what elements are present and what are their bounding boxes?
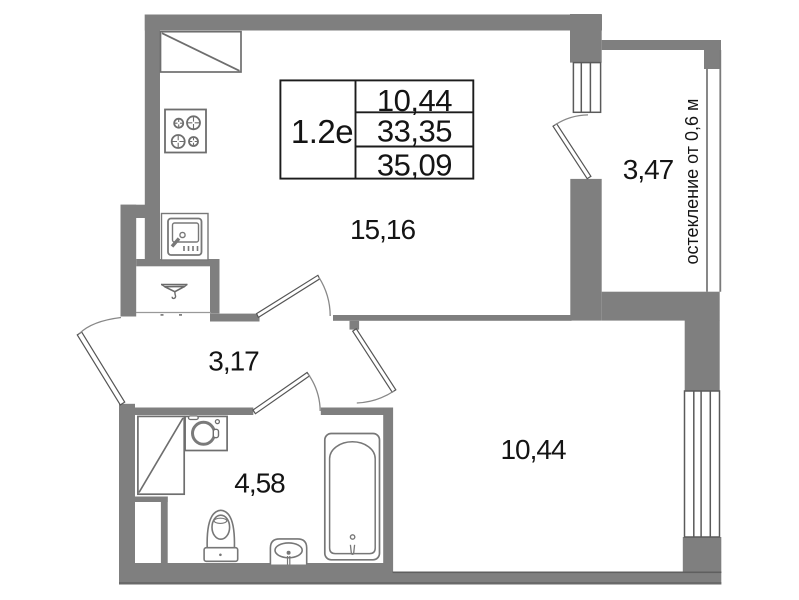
svg-text:остекление от 0,6 м: остекление от 0,6 м bbox=[682, 99, 702, 265]
svg-text:35,09: 35,09 bbox=[377, 147, 452, 182]
svg-text:33,35: 33,35 bbox=[377, 114, 452, 149]
svg-text:10,44: 10,44 bbox=[377, 83, 452, 118]
svg-text:4,58: 4,58 bbox=[234, 467, 285, 498]
svg-text:1.2е: 1.2е bbox=[291, 113, 353, 150]
svg-text:3,17: 3,17 bbox=[208, 346, 259, 377]
svg-text:15,16: 15,16 bbox=[350, 214, 415, 245]
svg-text:10,44: 10,44 bbox=[500, 434, 565, 465]
svg-text:3,47: 3,47 bbox=[623, 154, 674, 185]
